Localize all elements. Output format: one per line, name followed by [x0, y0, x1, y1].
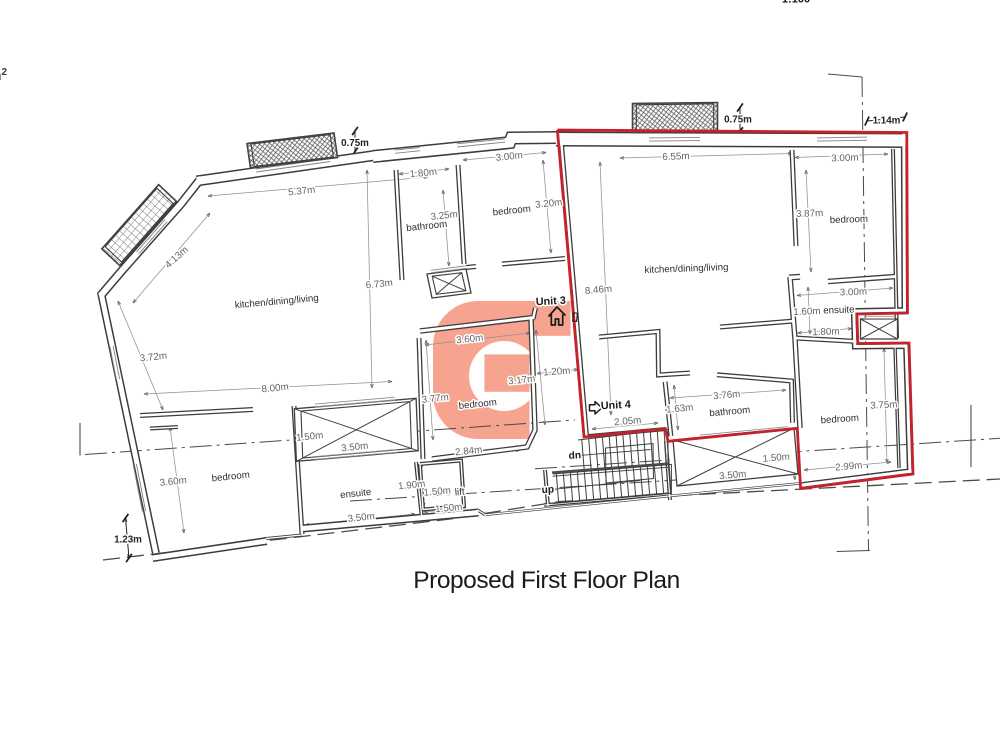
svg-text:Unit 3: Unit 3: [536, 295, 567, 309]
svg-text:2.99m: 2.99m: [835, 460, 863, 473]
svg-text:3.00m: 3.00m: [831, 153, 859, 165]
svg-text:1.23m: 1.23m: [114, 535, 142, 546]
svg-text:1.20m: 1.20m: [543, 366, 571, 379]
svg-text:1:100: 1:100: [782, 0, 810, 6]
svg-text:dn: dn: [568, 450, 581, 462]
svg-text:8.46m: 8.46m: [584, 284, 612, 297]
svg-text:bedroom: bedroom: [830, 214, 869, 226]
svg-text:3.75m: 3.75m: [870, 399, 898, 411]
svg-text:ensuite: ensuite: [823, 304, 855, 316]
svg-text:lift: lift: [454, 487, 465, 499]
svg-text:up: up: [541, 484, 554, 496]
svg-text:6.55m: 6.55m: [662, 151, 690, 163]
svg-text:3.87m: 3.87m: [796, 208, 824, 220]
svg-text:1.14m: 1.14m: [873, 116, 901, 127]
svg-text:3.00m: 3.00m: [840, 287, 868, 299]
svg-text:Unit 4: Unit 4: [601, 399, 632, 413]
svg-text:Proposed First Floor Plan: Proposed First Floor Plan: [413, 567, 680, 594]
svg-text:1.80m: 1.80m: [812, 326, 840, 338]
svg-text:1.60m: 1.60m: [793, 306, 821, 318]
svg-text:0.75m: 0.75m: [341, 138, 369, 149]
svg-text:0.75m: 0.75m: [724, 115, 752, 126]
